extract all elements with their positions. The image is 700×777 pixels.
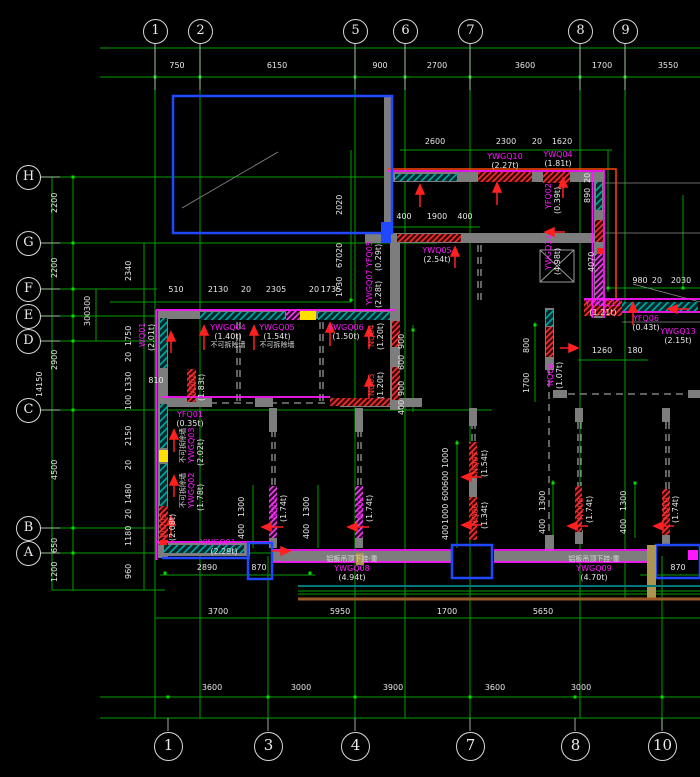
grid-bubble-top-2: 2 [188,19,213,44]
dim-label: 6150 [267,62,287,70]
dim-label: 2150 [125,426,133,446]
dim-label: 510 [168,286,183,294]
dim-label: 960 [125,564,133,579]
wall-label-ywgq06: YWGQ06 [328,324,363,332]
wall-label-yfq01: YFQ01 [177,411,203,419]
tan-pier-2 [647,545,656,598]
dim-label: 2900 [51,350,59,370]
wall-label-ywgq13: YWGQ13 [660,328,695,336]
grid-bubble-bottom-1: 1 [154,732,183,761]
grid-bubble-left-D: D [16,329,41,354]
wall-weight: (2.28t) [375,281,383,308]
dim-label: 2890 [197,564,217,572]
dim-label: 1300 [620,491,628,511]
grid-bubble-bottom-8: 8 [561,732,590,761]
wall-label-yfq02: YFQ02 [545,183,553,209]
wall-label-ywgq10: YWGQ10 [487,153,522,161]
wall-label-nq07: NQ07 [472,452,480,474]
dim-label: 20 [241,286,251,294]
grid-bubble-left-B: B [16,516,41,541]
dim-label-total: 14150 [36,372,44,397]
dim-label: 180 [627,347,642,355]
balcony-rails [298,586,700,599]
wall-weight: (2.08t) [169,514,177,541]
wall-label-nq06: NQ06 [472,504,480,526]
dim-label: 1000 [442,504,450,524]
wall-label-nq03: NQ03 [368,374,376,396]
note-non-removable: 不可拆除墙 [180,473,187,508]
dim-label: 5950 [330,608,350,616]
dim-label: 1700 [523,373,531,393]
grid-bubble-left-C: C [16,398,41,423]
wall-weight: (1.34t) [481,502,489,529]
grid-bubble-bottom-7: 7 [456,732,485,761]
grid-bubble-top-1: 1 [143,19,168,44]
dim-label: 2600 [425,138,445,146]
wall-weight: (4.70t) [580,574,607,582]
dim-label: 2305 [266,286,286,294]
grid-bubble-bottom-3: 3 [254,732,283,761]
wall-weight: (0.39t) [554,187,562,214]
wall-label-wq01: WQ01 [139,323,147,347]
wall-weight: (2.01t) [148,324,156,351]
wall-weight: (1.50t) [332,333,359,341]
wall-label-yfq05: YFQ05 [366,241,374,267]
dim-label: 600 [442,486,450,501]
dim-label: 2300 [496,138,516,146]
dim-label: 750 [169,62,184,70]
dim-label: 870 [670,564,685,572]
dim-label: 1700 [437,608,457,616]
note-hang-load: 铝板吊顶下挂·重 [568,556,619,563]
dim-label: 400 [396,213,411,221]
dim-label: 810 [148,377,163,385]
wall-weight: (1.20t) [377,323,385,350]
wall-label-nq10: NQ10 [663,498,671,520]
wall-weight: (0.29t) [375,244,383,271]
dim-label: 1200 [51,562,59,582]
dim-label: 5650 [533,608,553,616]
dim-label: 400 [398,400,406,415]
wall-label-ywgq02: YWGQ02 [188,473,196,508]
wall-label-nq01: NQ01 [271,497,279,519]
dim-label: 400 [539,519,547,534]
dim-label: 100 [125,395,133,410]
wall-weight: (1.07t) [556,362,564,389]
grid-bubble-left-A: A [16,541,41,566]
wall-weight: (1.74t) [672,496,680,523]
dim-label: 3550 [658,62,678,70]
wall-label-yfq06: YFQ06 [633,315,659,323]
wall-label-wq03: WQ03 [160,514,168,538]
wall-weight: (1.54t) [263,333,290,341]
dim-label: 20 [584,173,592,183]
red-block-2 [160,540,167,545]
wall-weight: (1.81t) [544,160,571,168]
wall-label-ywgq05: YWGQ05 [259,324,294,332]
dim-label: 20 [125,460,133,470]
grid-bubble-left-H: H [16,165,41,190]
dim-label: 2020 [336,195,344,215]
wall-label-ywq05: YWQ05 [422,247,451,255]
dim-label: 3900 [383,684,403,692]
dim-label: 3600 [515,62,535,70]
dim-label: 1300 [539,491,547,511]
dim-label: 890 [584,188,592,203]
grid-bubble-top-6: 6 [393,19,418,44]
dim-label: 20 [336,243,344,253]
blue-wall-piece [381,222,391,243]
dim-label: 3700 [208,608,228,616]
wall-weight: (1.74t) [586,496,594,523]
dim-label: 20 [125,352,133,362]
dim-label: 1300 [303,497,311,517]
drawing-linework [0,0,700,777]
wall-weight: (2.54t) [423,256,450,264]
dim-label: 2030 [671,277,691,285]
red-block-1 [597,248,604,254]
wall-weight: (1.54t) [481,450,489,477]
dim-label: 2700 [427,62,447,70]
dim-label: 1750 [125,326,133,346]
wall-label-nq09: NQ09 [547,364,555,386]
note-non-removable: 不可拆除墙 [211,342,246,349]
dim-label: 400 [238,524,246,539]
wall-label-ywgq01: YWGQ01 [200,539,235,547]
dim-label: 3600 [485,684,505,692]
dim-label: 1700 [592,62,612,70]
wall-weight: (1.20t) [377,372,385,399]
magenta-corner [688,550,698,560]
dim-label: 300 [84,296,92,311]
wall-label-nq08: NQ08 [577,498,585,520]
grid-bubble-left-G: G [16,231,41,256]
wall-label-ywgq09: YWGQ09 [576,565,611,573]
wall-label-ywgq03: YWGQ03 [188,428,196,463]
dim-label: 600 [398,355,406,370]
wall-label-ywgq07: YWGQ07 [366,270,374,305]
dim-label: 20 [309,286,319,294]
dim-label: 800 [523,338,531,353]
dim-label: 1900 [427,213,447,221]
wall-label-ywgq04: YWGQ04 [210,324,245,332]
dim-label: 300 [84,311,92,326]
wall-label-ywq04: YWQ04 [543,151,572,159]
dim-label: 3000 [291,684,311,692]
grid-bubble-top-5: 5 [343,19,368,44]
wall-weight: (1.21t) [589,309,616,317]
wall-weight: (4.98t) [554,248,562,275]
dim-label: 400 [442,525,450,540]
dim-label: 20 [652,277,662,285]
dim-label: 900 [398,334,406,349]
grid-bubble-top-8: 8 [568,19,593,44]
dim-label: 20 [532,138,542,146]
wall-label-ywgq08: YWGQ08 [334,565,369,573]
dim-label: 980 [632,277,647,285]
wall-weight: (2.02t) [197,439,205,466]
grid-bubble-bottom-10: 10 [648,732,677,761]
wall-weight: (1.83t) [198,374,206,401]
dim-label: 900 [372,62,387,70]
wall-weight: (2.27t) [491,162,518,170]
dim-label: 1300 [238,497,246,517]
grid-bubble-left-F: F [16,277,41,302]
dim-label: 4070 [588,252,596,272]
wall-weight: (4.94t) [338,574,365,582]
wall-weight: (1.40t) [214,333,241,341]
dim-label: 1730 [336,277,344,297]
wall-weight: (0.43t) [632,324,659,332]
grid-bubble-top-7: 7 [458,19,483,44]
grid-bubble-bottom-4: 4 [341,732,370,761]
dim-label: 1620 [552,138,572,146]
dim-label: 2340 [125,261,133,281]
wall-weight: (2.29t) [210,548,237,556]
yellow-block-1 [300,311,316,320]
wall-weight: (1.74t) [366,495,374,522]
cad-floor-plan-canvas: 1 2 5 6 7 8 9 H G F E D C B A 1 3 4 7 8 … [0,0,700,777]
dim-label: 1180 [125,526,133,546]
wall-weight: (1.78t) [197,484,205,511]
dim-label: 870 [251,564,266,572]
wall-label-nq02: NQ02 [357,497,365,519]
note-non-removable: 不可拆除墙 [260,342,295,349]
dim-label: 400 [620,519,628,534]
dim-label: 1480 [125,484,133,504]
note-hang-load: 铝板吊顶下挂·重 [326,556,377,563]
dim-label: 4500 [51,460,59,480]
grid-bubble-left-E: E [16,304,41,329]
dim-label: 3000 [571,684,591,692]
dim-label: 20 [125,509,133,519]
dim-label: 2200 [51,193,59,213]
dim-label: 400 [303,524,311,539]
wall-label-wq02: WQ02 [189,374,197,398]
dim-label: 900 [398,381,406,396]
grid-bubble-top-9: 9 [613,19,638,44]
dim-label: 400 [457,213,472,221]
dim-label: 1000 [442,448,450,468]
dim-label: 670 [336,253,344,268]
wall-weight: (1.74t) [280,495,288,522]
axis-leaders [40,43,662,731]
dim-label: 3600 [202,684,222,692]
dim-label: 650 [51,538,59,553]
dim-label: 2130 [208,286,228,294]
wall-label-ywgq11: YWGQ11 [545,235,553,270]
dim-label: 1260 [592,347,612,355]
dim-label: 600 [442,471,450,486]
wall-label-ywgq12: YWGQ12 [585,300,620,308]
wall-weight: (2.15t) [664,337,691,345]
note-non-removable: 不可拆除墙 [180,428,187,463]
dim-label: 1330 [125,372,133,392]
yellow-block-2 [159,450,168,462]
dim-label: 2200 [51,258,59,278]
wall-label-nq04: NQ04 [368,325,376,347]
